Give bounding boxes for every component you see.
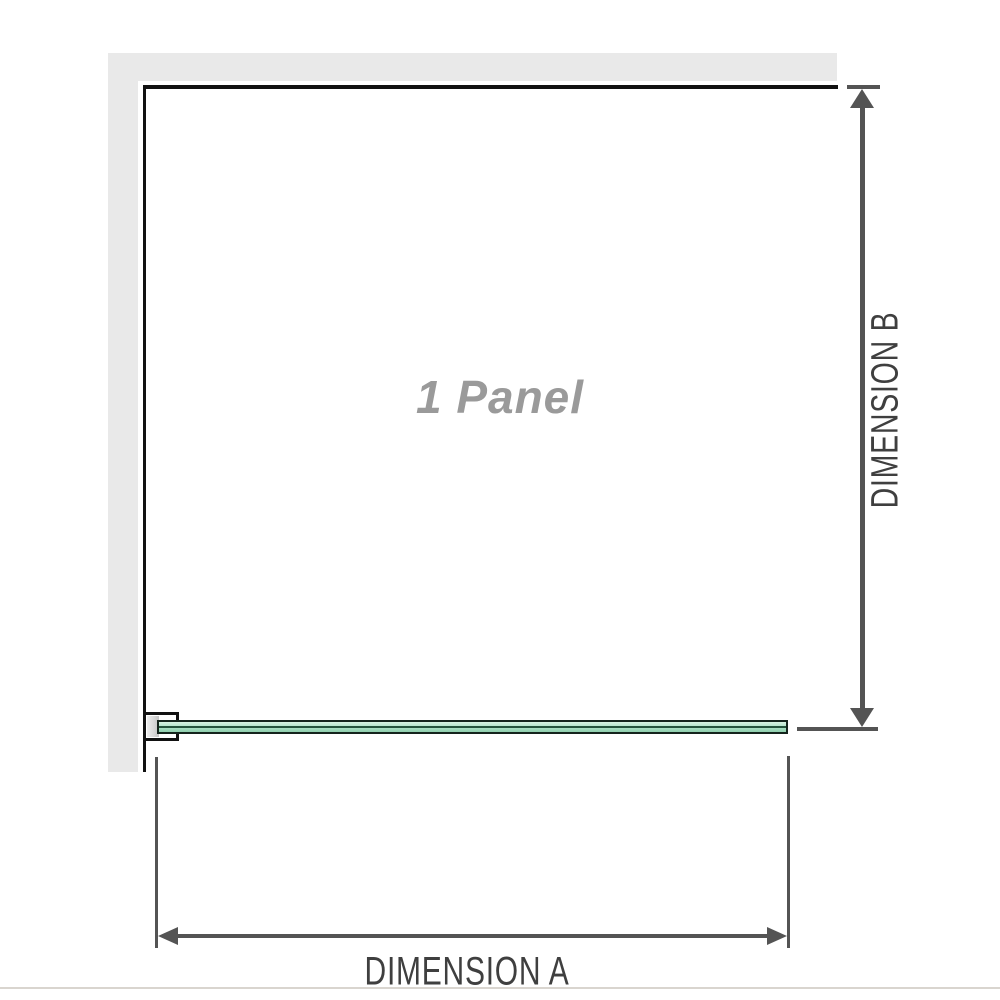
arrow-right-icon [767, 927, 787, 945]
dimension-a-extension-left [155, 757, 158, 948]
arrow-up-icon [850, 89, 874, 108]
dimension-a-line [170, 934, 775, 938]
wall-top-segment [108, 53, 837, 81]
arrow-down-icon [850, 708, 874, 727]
dimension-b-tick-bottom [797, 727, 878, 731]
glass-core-line [159, 726, 786, 728]
image-bottom-border [0, 987, 1000, 989]
glass-panel-bar [157, 720, 788, 734]
wall-inner-outline-left [143, 85, 146, 772]
dimension-b-label: DIMENSION B [865, 312, 908, 509]
wall-inner-outline-top [143, 85, 838, 89]
dimension-a-extension-right [787, 756, 790, 948]
wall-left-segment [108, 53, 138, 772]
arrow-left-icon [158, 927, 178, 945]
panel-dimension-diagram: 1 Panel DIMENSION B DIMENSION A [0, 0, 1000, 1000]
panel-count-label: 1 Panel [416, 370, 584, 424]
